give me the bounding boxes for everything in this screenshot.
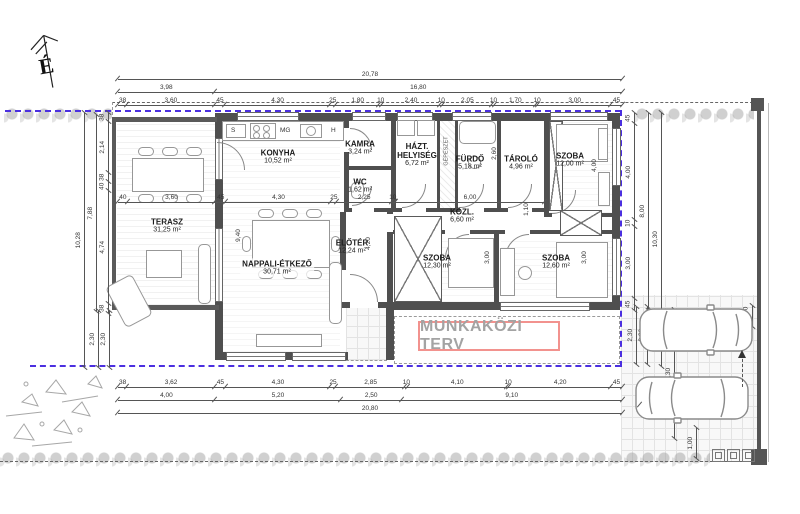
sofa [198,244,211,304]
room-label-szoba-south: SZOBA 12,60 m² [542,253,570,270]
dim-chain-left-total7: 7,88 [88,115,101,311]
room-label-kozl: KÖZL. 6,60 m² [450,207,474,224]
car-top-view [637,304,755,356]
chair [258,209,274,218]
window [500,302,590,311]
room-area: 4,96 m² [504,164,538,172]
room-name: HÁZT. HELYISÉG [394,142,440,160]
door-swing-arc [402,184,426,208]
site-line-bottom [0,461,758,462]
terasz-wall [112,117,217,122]
sink-basin-icon [306,126,316,136]
wall [386,302,394,360]
room-area: 12,30 m² [423,263,451,271]
desk [598,172,610,206]
window [352,112,386,121]
pillow [598,128,608,160]
dim-label: 1,10 [523,203,530,216]
gepeszet-label: GÉPÉSZET [444,136,450,165]
dim-chain-left-total10: 10,28 [76,113,89,367]
room-label-terasz: TERASZ 31,25 m² [151,217,183,234]
watermark-status-box: MUNKAKÖZI TERV [418,321,560,351]
burner-icon [253,125,260,132]
room-name: TERASZ [151,217,183,226]
utility-box-icon [712,449,725,462]
chair [282,209,298,218]
side-table [146,250,182,278]
rock-garden-sketch [2,372,114,456]
burner-icon [263,125,270,132]
shrub-row-top-right [634,105,754,123]
room-label-hazt: HÁZT. HELYISÉG 6,72 m² [394,142,440,168]
burner-icon [253,132,260,139]
room-area: 6,60 m² [450,217,474,225]
window [550,112,608,121]
room-label-nappali: NAPPALI-ÉTKEZŐ 30,71 m² [240,258,314,277]
dim-label: 9,40 [235,229,242,242]
room-label-kamra: KAMRA 3,24 m² [345,139,375,156]
room-area: 1,62 m² [348,187,372,195]
dim-chain-bottom-row2: 4,005,202,509,10 [118,391,622,404]
dim-chain-bottom: 383,62454,30252,85104,10104,2045 [118,378,622,391]
desk [500,248,515,296]
kitchen-label-h: H [331,127,336,134]
dim-chain-bottom-total: 20,80 [118,404,622,417]
room-name: WC [348,177,372,186]
kitchen-label-mg: MG [280,127,290,134]
utility-box-icon [727,449,740,462]
door-opening [402,208,426,212]
shrub-row-top-left [4,105,112,123]
property-line-bottom [30,365,621,367]
utility-box-icon [742,449,755,462]
door-opening [387,214,393,232]
window [612,238,621,296]
fence-post-top [751,98,764,111]
door-swing-arc [350,274,378,302]
room-label-szoba-north: SZOBA 12,00 m² [556,151,584,168]
room-area: 30,71 m² [242,269,312,277]
room-area: 5,18 m² [456,164,484,172]
entry-direction-line [742,359,743,387]
room-area: 12,24 m² [336,248,368,256]
chair [186,194,202,203]
room-name: TÁROLÓ [504,154,538,163]
room-name: KÖZL. [450,207,474,216]
room-area: 12,00 m² [556,161,584,169]
room-area: 10,52 m² [261,158,296,166]
chair [186,147,202,156]
wall [494,234,499,302]
dim-chain-top-total: 20,78 [118,70,622,83]
window [226,352,286,361]
entry-direction-arrow-icon [738,350,746,358]
room-label-konyha: KONYHA 10,52 m² [261,148,296,165]
room-name: NAPPALI-ÉTKEZŐ [242,259,312,268]
property-line-top [5,110,621,112]
dim-chain-parking-c: 2,30 [90,311,103,367]
dim-chain-top-row2: 3,9816,80 [118,83,622,96]
north-label: É [37,52,56,79]
chair [138,147,154,156]
bathtub-icon [459,121,496,144]
site-line-top [112,102,758,103]
dim-chain-parking-d: 2,30 [101,311,114,367]
room-area: 12,60 m² [542,263,570,271]
room-name: SZOBA [423,253,451,262]
chair [162,194,178,203]
entrance-door-opening [350,302,378,308]
sofa [329,262,342,324]
kitchen-cabinet [226,124,246,138]
dim-label: 2,60 [491,147,498,160]
dim-label: 3,00 [581,251,588,264]
room-label-wc: WC 1,62 m² [348,177,372,194]
room-name: KAMRA [345,139,375,148]
kitchen-label-s: S [231,127,235,134]
washer-icon [417,120,435,136]
room-label-furdo: FÜRDŐ 5,18 m² [456,154,484,171]
window [612,128,621,186]
room-name: ELŐTÉR [336,238,368,247]
wall [497,113,501,212]
car-top-view [633,372,751,424]
dim-label: 4,20 [365,237,372,250]
chair [162,147,178,156]
chair [242,236,251,252]
room-area: 6,72 m² [394,160,440,168]
room-name: FÜRDŐ [456,154,484,163]
room-label-eloter: ELŐTÉR 12,24 m² [336,238,368,255]
fence-inner-line [768,103,769,462]
dim-chain-right-total8: 8,00 [640,113,653,310]
dining-table [132,158,204,192]
wardrobe [560,210,602,236]
dim-chain-right: 454,00103,0045 [626,113,639,310]
chair [518,266,532,280]
washer-icon [397,120,415,136]
sliding-door [215,228,223,302]
door-swing-arc [460,184,484,208]
fence-right [757,103,761,462]
wall [344,166,396,170]
room-label-szoba-middle: SZOBA 12,30 m² [423,253,451,270]
window [452,112,492,121]
dim-label: 3,00 [484,251,491,264]
room-area: 3,24 m² [345,149,375,157]
room-area: 31,25 m² [151,227,183,235]
floor-plan-canvas: É [0,0,800,514]
entry-porch-paving [346,308,387,361]
dim-label: 4,00 [591,159,598,172]
burner-icon [263,132,270,139]
room-name: KONYHA [261,148,296,157]
window [237,112,299,121]
door-opening [352,208,374,212]
window [292,352,346,361]
room-label-tarolo: TÁROLÓ 4,96 m² [504,154,538,171]
chair [306,209,322,218]
north-arrow-icon: É [23,27,73,93]
tv-cabinet [256,334,322,347]
room-name: SZOBA [556,151,584,160]
room-name: SZOBA [542,253,570,262]
chair [138,194,154,203]
